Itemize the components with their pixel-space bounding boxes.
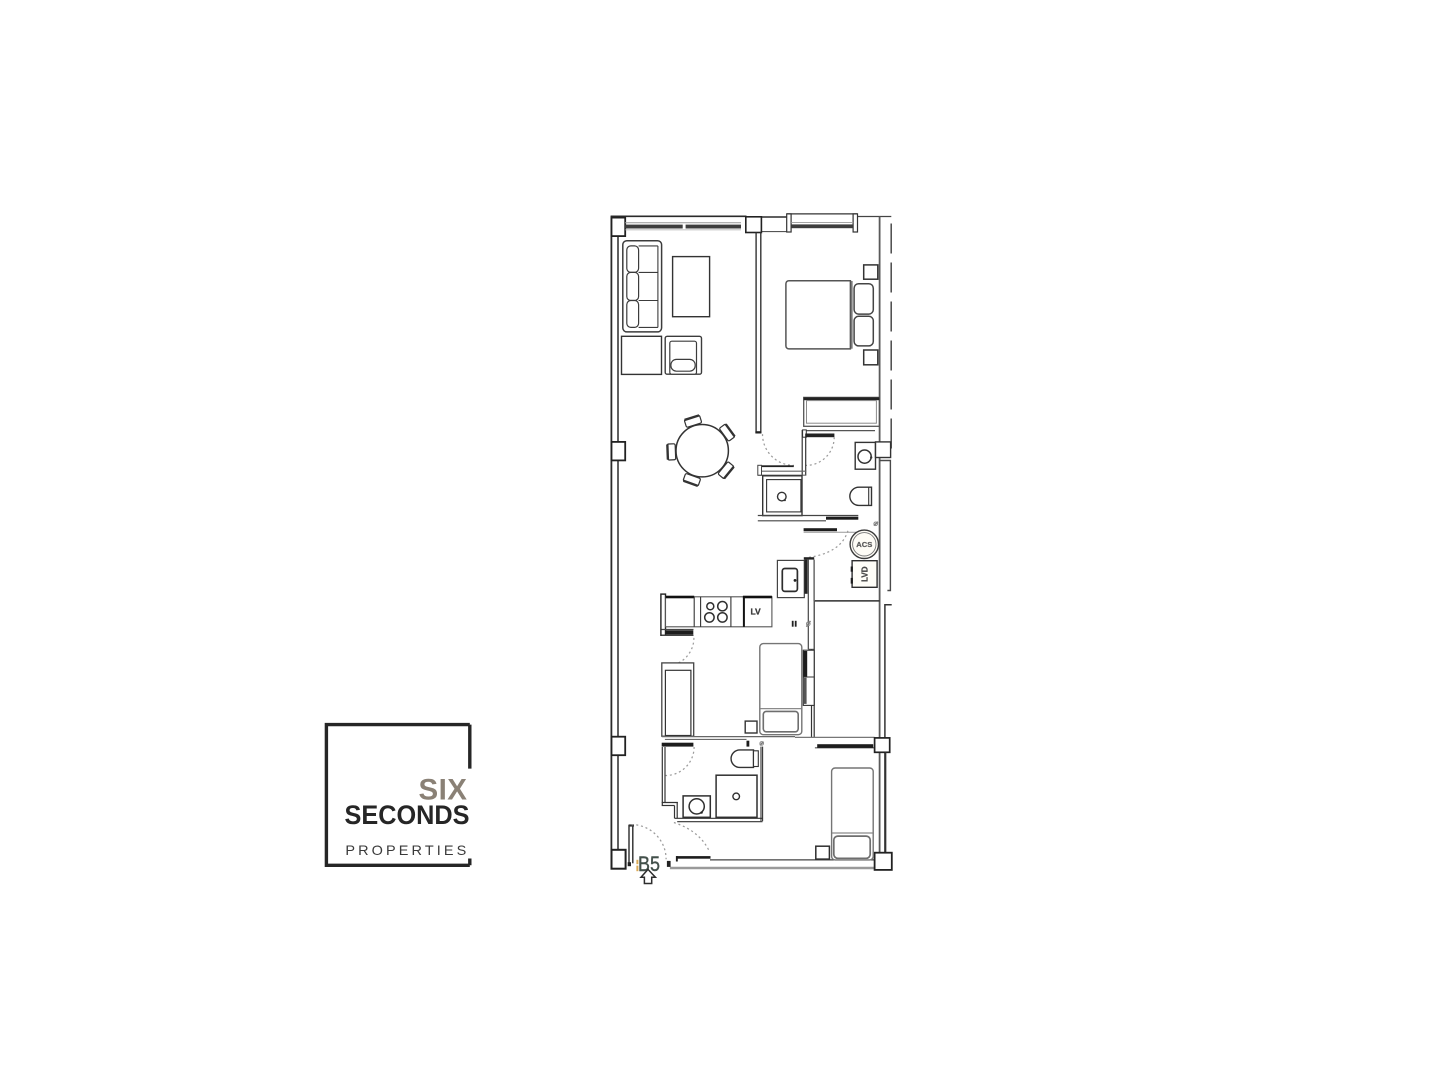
svg-text:ACS: ACS — [856, 540, 872, 549]
svg-text:LVD: LVD — [860, 566, 869, 582]
svg-text:LV: LV — [751, 607, 762, 617]
svg-text:SECONDS: SECONDS — [345, 800, 470, 830]
svg-text:PROPERTIES: PROPERTIES — [345, 842, 469, 858]
